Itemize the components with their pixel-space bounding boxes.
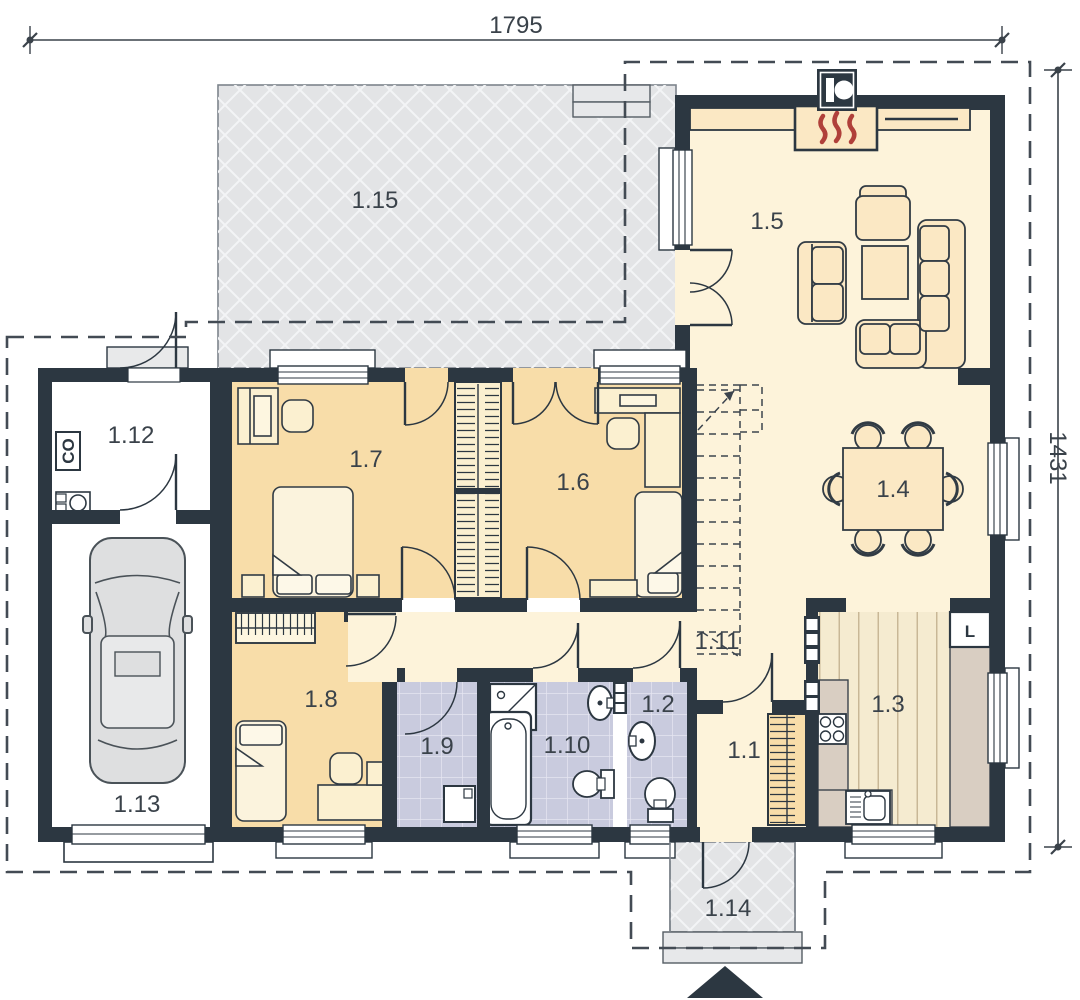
- dimension-right-value: 1431: [1044, 431, 1071, 484]
- label-terrace: 1.15: [352, 187, 399, 214]
- label-porch: 1.14: [705, 895, 752, 922]
- floor-plan: CO: [0, 0, 1080, 1000]
- side-door-opening: [128, 368, 180, 382]
- chair: [282, 400, 313, 432]
- bedroom-wardrobe-strip: [455, 382, 501, 598]
- label-living: 1.5: [750, 208, 783, 235]
- label-bedroom-left: 1.7: [349, 446, 382, 473]
- desk-return: [645, 413, 680, 487]
- label-garage: 1.13: [114, 791, 161, 818]
- door-opening: [405, 368, 448, 382]
- washbasin: [629, 722, 655, 760]
- label-corridor: 1.11: [695, 628, 740, 655]
- label-bathroom: 1.10: [544, 732, 591, 759]
- dimension-right: 1431: [1044, 63, 1072, 854]
- label-wc: 1.2: [641, 691, 674, 718]
- window: [988, 673, 1007, 763]
- sideboard: [690, 108, 795, 130]
- porch-step: [663, 932, 802, 948]
- window: [988, 443, 1007, 535]
- label-laundry: 1.9: [420, 733, 453, 760]
- boiler-label: CO: [59, 438, 78, 464]
- stove: [818, 714, 846, 744]
- sofa: [798, 242, 846, 324]
- coffee-table: [862, 246, 908, 299]
- double-bed: [273, 487, 353, 597]
- kitchen-counter-right: [950, 647, 990, 827]
- window-sill: [270, 350, 375, 368]
- armchair: [856, 186, 910, 240]
- car: [83, 538, 192, 783]
- toilet: [573, 770, 614, 798]
- porch-step: [663, 948, 802, 963]
- nightstand: [242, 575, 264, 597]
- window: [630, 825, 670, 844]
- window: [278, 366, 368, 384]
- window: [283, 825, 365, 844]
- label-utility: 1.12: [108, 422, 155, 449]
- french-door-opening: [675, 250, 690, 325]
- chair: [330, 753, 362, 784]
- laundry-fixtures: [444, 786, 475, 822]
- toilet: [645, 778, 675, 822]
- label-hall: 1.1: [727, 737, 760, 764]
- window-sill: [594, 350, 686, 368]
- dimension-top: 1795: [23, 12, 1009, 54]
- window: [673, 150, 692, 245]
- entrance-opening: [700, 827, 752, 842]
- window: [852, 825, 935, 844]
- window: [600, 366, 680, 384]
- single-bed: [635, 492, 682, 597]
- label-dining: 1.4: [876, 476, 909, 503]
- label-bedroom-small: 1.8: [304, 686, 337, 713]
- bench: [590, 580, 637, 597]
- terrace-step: [573, 102, 650, 117]
- wardrobe: [236, 613, 315, 643]
- nightstand: [357, 575, 379, 597]
- single-bed: [236, 721, 286, 821]
- label-bedroom-right: 1.6: [556, 469, 589, 496]
- chair: [607, 418, 639, 449]
- window: [517, 825, 592, 844]
- floor-plan-canvas: CO: [0, 0, 1080, 1000]
- chimney: [818, 70, 856, 110]
- fridge-label: L: [965, 622, 975, 641]
- hall-wardrobe: [768, 714, 806, 825]
- kitchen-sink: [846, 791, 890, 824]
- entrance-arrow: [687, 966, 763, 998]
- double-door-opening: [513, 368, 598, 382]
- garage-door: [64, 842, 213, 862]
- terrace-step: [573, 85, 650, 102]
- label-kitchen: 1.3: [871, 691, 904, 718]
- bathtub: [486, 712, 531, 825]
- fridge: L: [950, 612, 990, 647]
- terrace-area: [218, 85, 676, 368]
- dimension-top-value: 1795: [489, 12, 542, 39]
